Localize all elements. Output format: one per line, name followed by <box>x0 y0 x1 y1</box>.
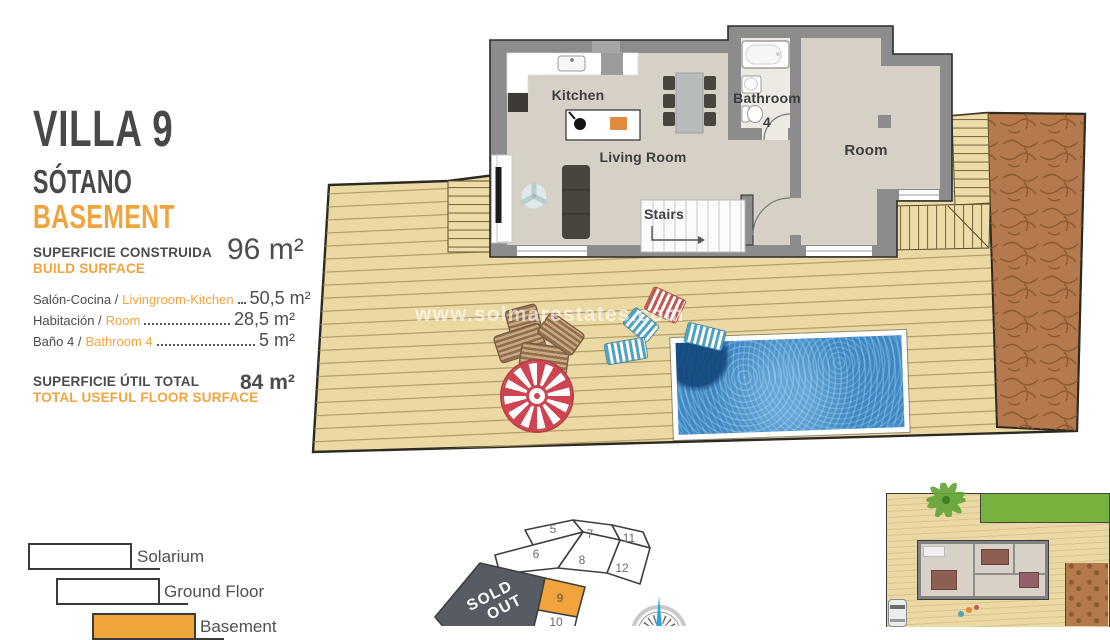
kitchen-oven <box>508 93 528 112</box>
toilet <box>742 106 763 123</box>
label-stairs: Stairs <box>644 206 684 222</box>
label-kitchen: Kitchen <box>552 87 605 103</box>
label-room: Room <box>844 142 887 159</box>
parasol-hub <box>526 385 548 407</box>
outdoor-steps-left <box>448 181 490 252</box>
house: Kitchen Living Room Bathroom 4 Room Stai… <box>490 26 952 257</box>
cutting-board <box>610 117 627 130</box>
parasol-umbrella <box>502 361 572 431</box>
doorway-room <box>788 198 803 235</box>
palm-tree-icon <box>924 483 968 517</box>
sofa <box>562 165 590 239</box>
plot-number: 7 <box>587 527 594 541</box>
site-overview-map <box>880 487 1110 626</box>
mini-item <box>974 605 979 610</box>
plot-number: 8 <box>579 553 586 567</box>
cooking-pot <box>574 118 586 130</box>
kitchen-island <box>566 110 640 140</box>
mini-wall <box>1013 544 1015 575</box>
label-bathroom: Bathroom <box>733 90 801 106</box>
plot-number: 5 <box>550 522 557 536</box>
mini-lawn <box>980 493 1110 523</box>
plot-number: 10 <box>549 615 563 626</box>
mini-bed <box>981 549 1009 565</box>
bathtub <box>742 41 789 68</box>
mini-item <box>966 607 972 613</box>
tv-screen <box>496 167 502 223</box>
window-top <box>592 41 620 52</box>
watermark: www.solmarestates.com <box>415 303 685 327</box>
earth-area <box>987 113 1085 431</box>
mini-item <box>958 611 964 617</box>
dining-table <box>676 73 703 133</box>
dining-set <box>663 73 716 133</box>
label-bathroom-number: 4 <box>763 114 771 130</box>
outdoor-steps-right <box>952 113 990 205</box>
mini-car <box>888 599 907 627</box>
ceiling-fan <box>522 184 547 209</box>
kitchen-appliance <box>601 53 623 75</box>
plot-number: 6 <box>533 547 540 561</box>
mini-bed <box>931 570 957 590</box>
mini-bed <box>1019 572 1039 588</box>
mini-earth-area <box>1065 563 1108 626</box>
kitchen-sink <box>558 56 585 71</box>
mini-wall <box>973 544 975 596</box>
column <box>878 115 891 128</box>
plot-number: 12 <box>615 561 629 575</box>
mini-closet <box>923 546 945 557</box>
plot-number: 11 <box>623 531 636 545</box>
compass-icon <box>627 590 691 626</box>
plot-number-highlighted: 9 <box>557 591 564 605</box>
tv-unit <box>496 155 513 242</box>
label-living-room: Living Room <box>600 149 687 165</box>
outdoor-steps-lower <box>893 204 990 250</box>
mini-house <box>918 541 1048 599</box>
